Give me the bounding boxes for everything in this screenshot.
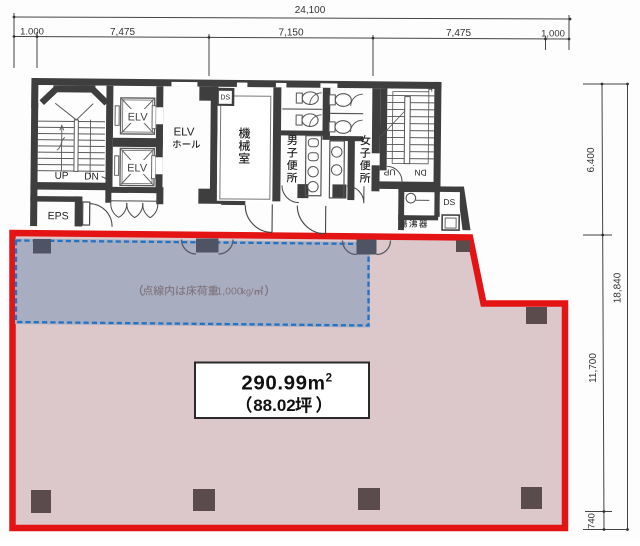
svg-text:7,475: 7,475 <box>446 28 471 39</box>
svg-text:DS: DS <box>220 94 230 101</box>
svg-text:kg/: kg/ <box>241 287 254 297</box>
svg-text:DN: DN <box>84 172 99 183</box>
svg-text:11,700: 11,700 <box>588 353 599 383</box>
svg-text:H: H <box>428 87 433 94</box>
svg-text:UP: UP <box>383 167 395 177</box>
svg-text:88.02: 88.02 <box>253 396 296 415</box>
svg-text:ELV: ELV <box>173 126 194 138</box>
svg-text:7,475: 7,475 <box>110 27 135 38</box>
svg-text:1.000: 1.000 <box>20 27 44 38</box>
svg-text:24,100: 24,100 <box>295 5 326 16</box>
svg-text:18,840: 18,840 <box>613 272 624 303</box>
svg-text:ELV: ELV <box>128 111 149 123</box>
svg-text:DS: DS <box>443 197 455 207</box>
svg-text:ELV: ELV <box>127 162 148 174</box>
svg-text:EPS: EPS <box>48 210 69 222</box>
svg-text:1,000: 1,000 <box>216 286 242 298</box>
svg-text:290.99m2: 290.99m2 <box>241 372 332 395</box>
svg-text:740: 740 <box>587 513 598 529</box>
svg-text:7,150: 7,150 <box>278 28 303 39</box>
svg-text:6.400: 6.400 <box>586 147 597 172</box>
svg-text:1,000: 1,000 <box>541 29 565 40</box>
svg-text:UP: UP <box>55 171 69 182</box>
svg-text:DN: DN <box>414 168 426 178</box>
